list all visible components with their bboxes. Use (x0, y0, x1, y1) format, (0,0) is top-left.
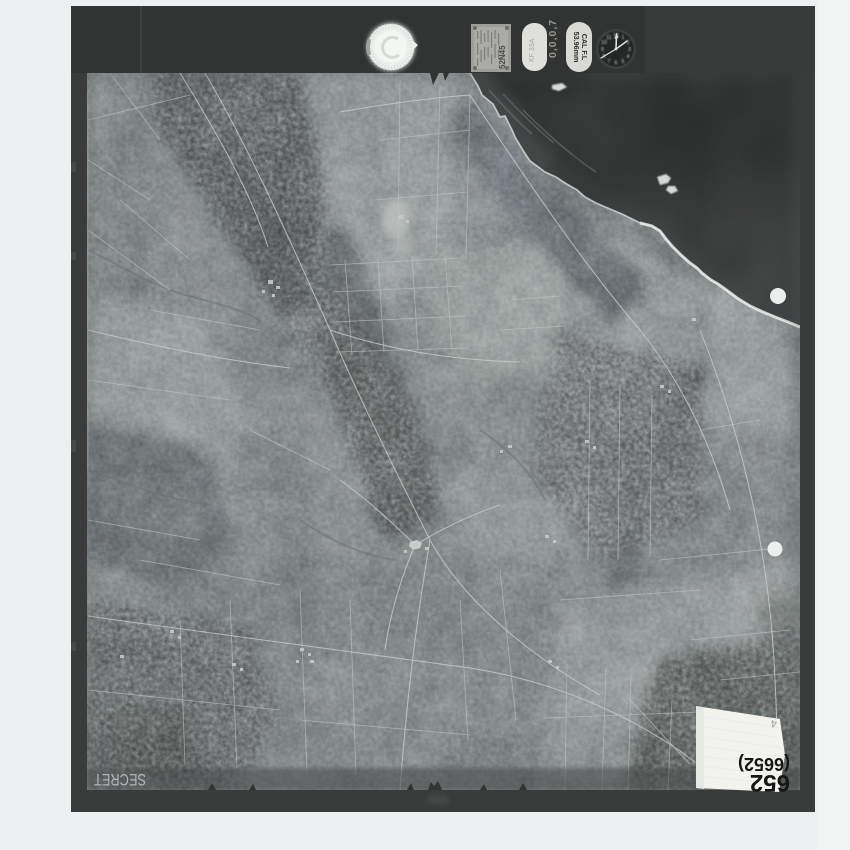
svg-text:53.96mm: 53.96mm (572, 32, 581, 63)
svg-text:SECRET: SECRET (94, 770, 146, 788)
svg-text:KF 33A: KF 33A (529, 38, 536, 62)
svg-text:6: 6 (615, 61, 618, 67)
svg-text:3: 3 (628, 47, 631, 53)
svg-text:7: 7 (608, 59, 611, 65)
svg-text:0,0,0,7: 0,0,0,7 (547, 19, 559, 58)
svg-text:52N45: 52N45 (498, 45, 507, 69)
svg-text:4: 4 (627, 54, 630, 60)
svg-text:(6652): (6652) (738, 754, 790, 774)
svg-text:5: 5 (622, 59, 625, 65)
svg-text:4: 4 (771, 717, 777, 729)
svg-text:1: 1 (622, 35, 625, 41)
svg-text:11: 11 (606, 35, 611, 41)
svg-text:9: 9 (601, 47, 604, 53)
